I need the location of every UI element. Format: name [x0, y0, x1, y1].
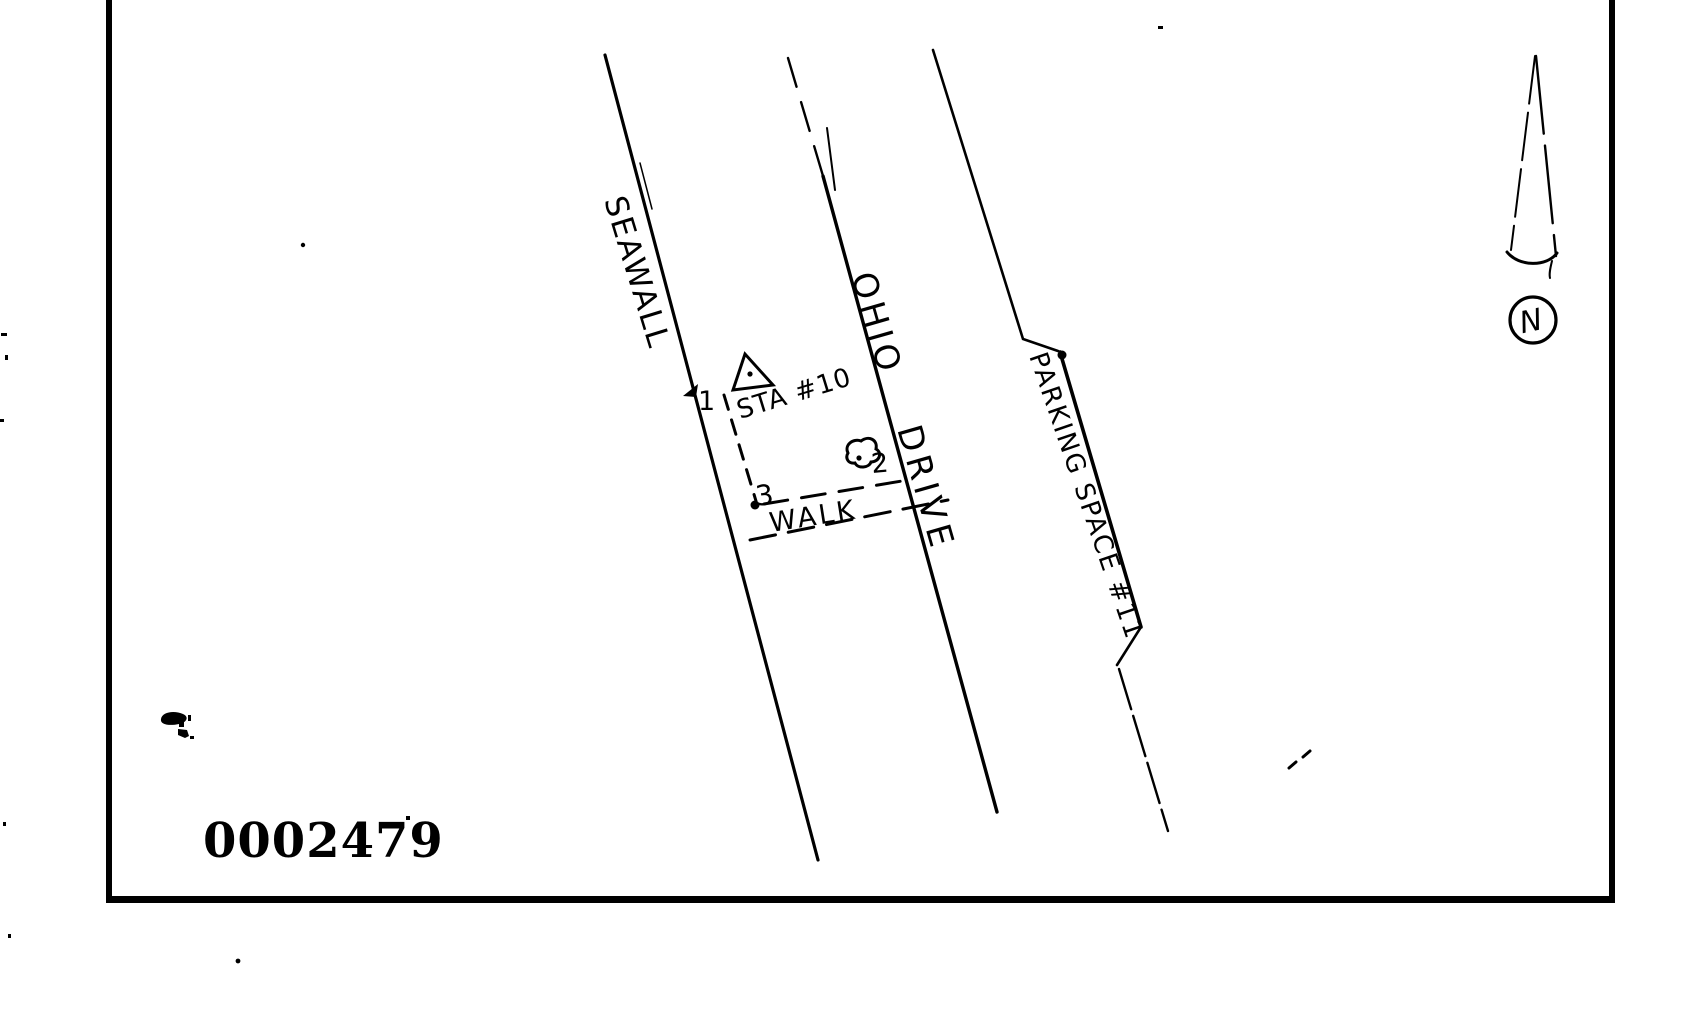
speck-dot: [236, 959, 241, 964]
point-2-dot: [856, 455, 861, 460]
ohio-drive-line-dashed-top: [788, 58, 823, 176]
point-1-marker: [683, 384, 698, 397]
parking-line-start-blob: [1058, 351, 1067, 360]
page-border: [106, 0, 1615, 903]
seawall-label: SEAWALL: [596, 192, 676, 353]
page-border-left: [106, 0, 112, 903]
speck-dot: [1158, 26, 1163, 29]
ink-speck: [178, 729, 189, 738]
speck-dot: [3, 822, 6, 826]
north-arrow-tail: [1550, 261, 1552, 278]
ink-speck: [190, 736, 194, 739]
parking-line-upper: [933, 50, 1058, 351]
sketch-drawing: SEAWALL OHIO DRIVE PARKING SPACE #11 WAL…: [0, 0, 1696, 1023]
north-label: N: [1516, 302, 1545, 341]
seawall-line: [605, 55, 818, 860]
speck-dot: [5, 355, 8, 360]
station-triangle-dot: [747, 371, 752, 376]
ink-speck: [179, 717, 184, 727]
drive-label: DRIVE: [888, 420, 962, 556]
ink-speck: [188, 715, 191, 721]
point-3-label: 3: [753, 478, 775, 513]
north-arrow: [1507, 56, 1557, 343]
north-arrow-base-arc: [1507, 252, 1557, 263]
speck-dot: [0, 419, 4, 422]
speck-dot: [8, 934, 11, 938]
speck-dash: [1303, 751, 1310, 757]
north-arrow-right-leg: [1536, 56, 1556, 256]
station-label: STA #10: [733, 362, 855, 425]
page-border-bottom: [106, 896, 1615, 903]
ohio-drive-tick-mark: [827, 128, 835, 190]
stamp-number: 0002479: [203, 813, 444, 869]
station-triangle-symbol: [733, 354, 773, 390]
seawall-line-double-stroke: [640, 163, 652, 209]
north-arrow-left-leg: [1511, 56, 1535, 250]
scanned-site-sketch: SEAWALL OHIO DRIVE PARKING SPACE #11 WAL…: [0, 0, 1696, 1023]
speck-dot: [301, 243, 305, 247]
parking-line-lower: [1119, 669, 1168, 831]
point-2-label: 2: [870, 448, 890, 480]
page-border-right: [1609, 0, 1615, 903]
scan-specks: [0, 26, 1163, 963]
speck-dot: [1, 333, 7, 336]
speck-dash: [1289, 762, 1296, 768]
parking-space-label: PARKING SPACE #11: [1022, 349, 1149, 644]
point-1-label: 1: [698, 386, 715, 417]
ink-smudge: [161, 712, 194, 739]
ohio-label: OHIO: [842, 267, 909, 379]
